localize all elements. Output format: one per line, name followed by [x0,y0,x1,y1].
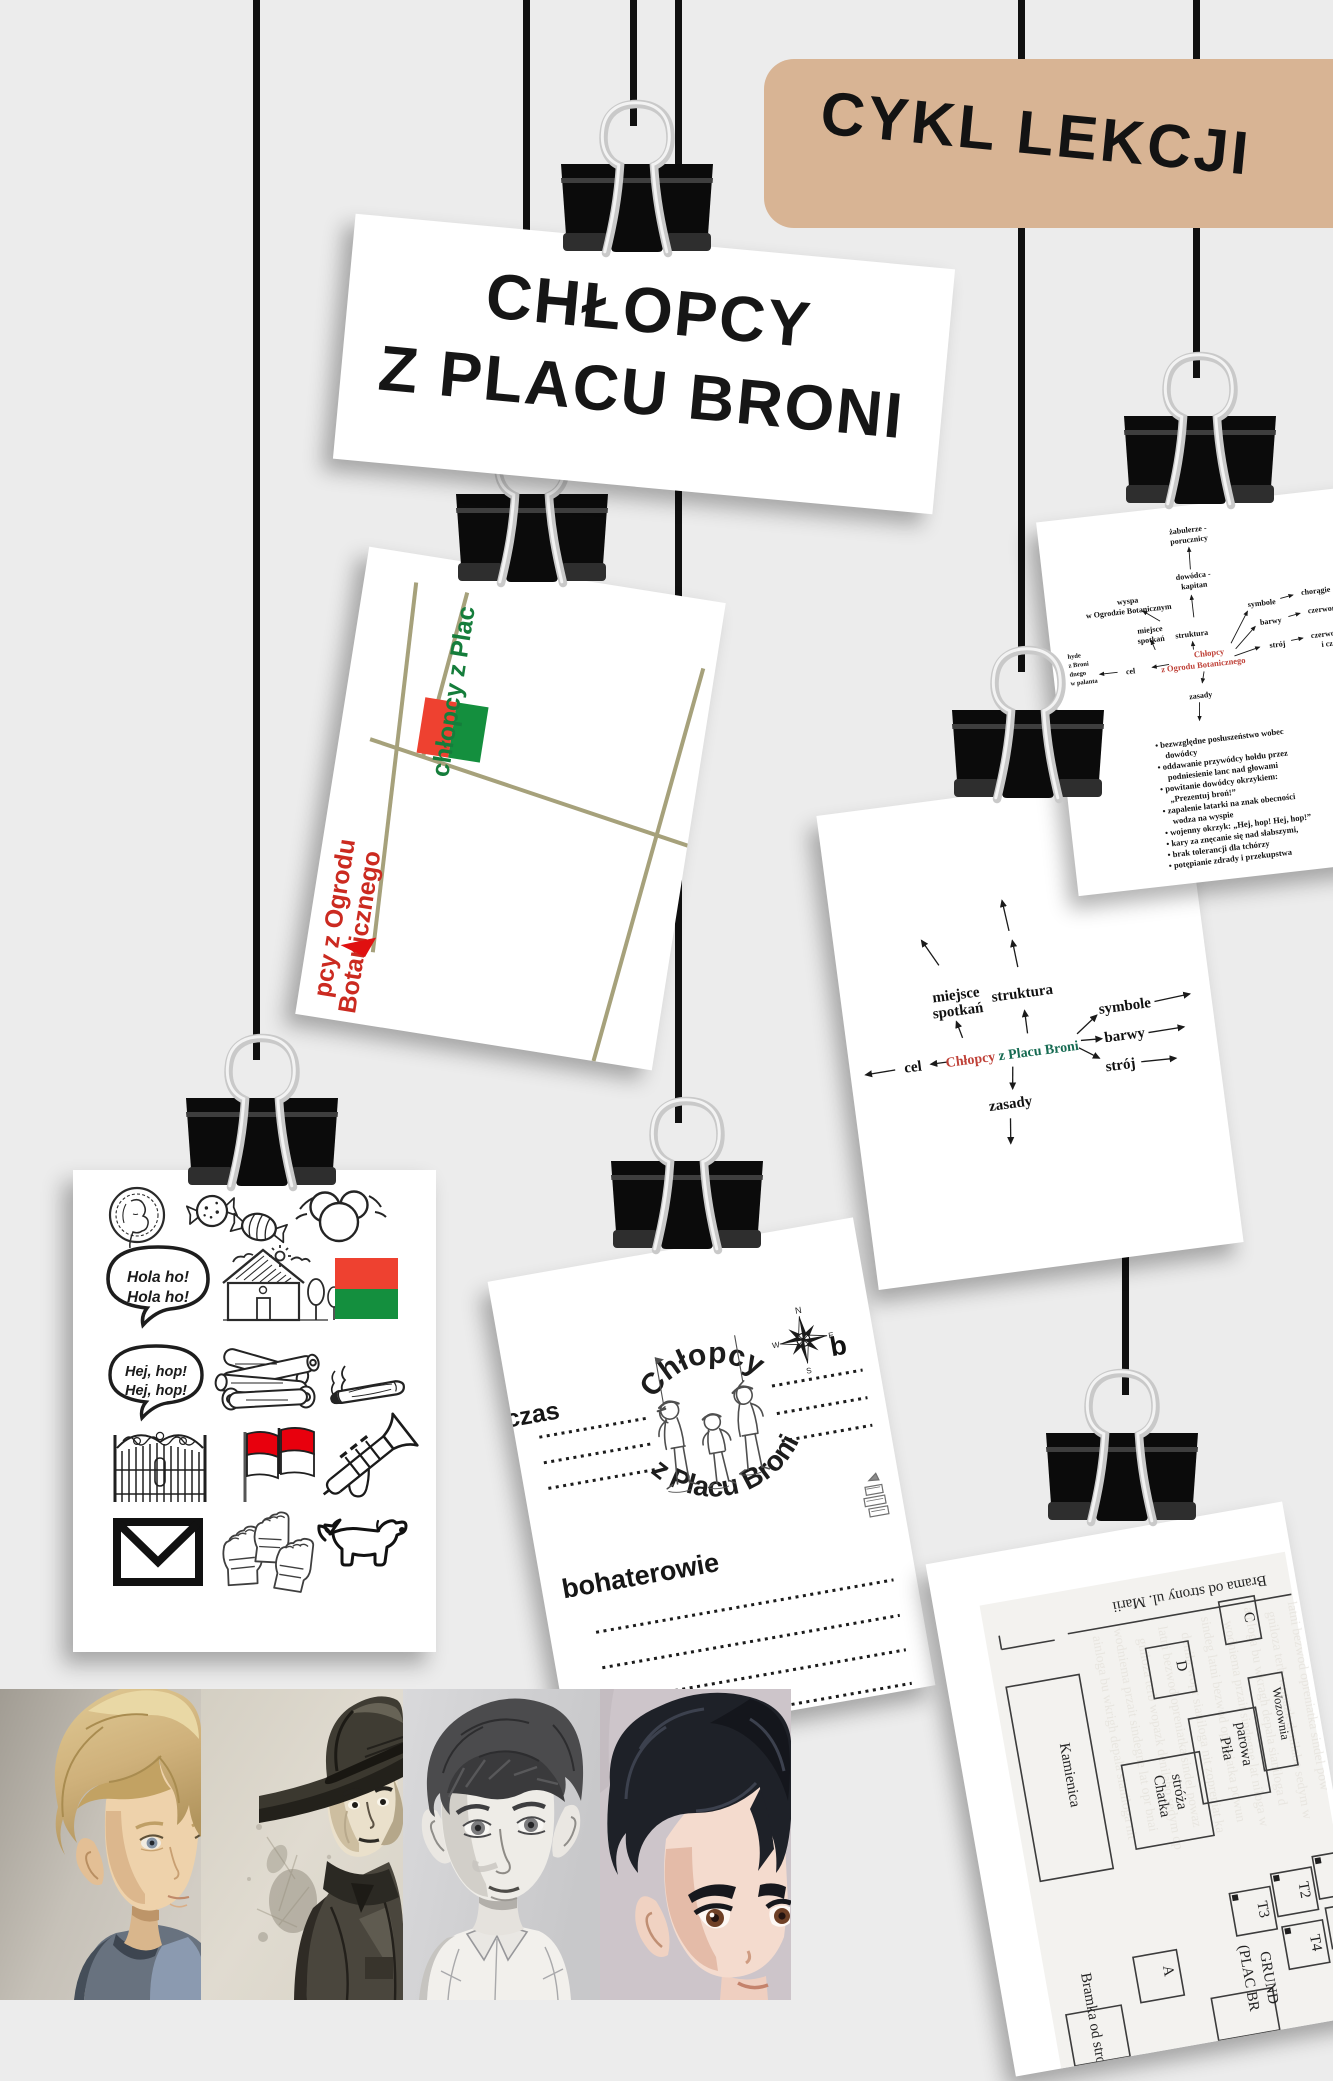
svg-text:• bezwzględne posłuszeństwo w: • bezwzględne posłuszeństwo wobec [1155,726,1285,751]
svg-text:struktura: struktura [991,982,1055,1006]
svg-text:Chłopcy: Chłopcy [628,1326,776,1406]
svg-text:z Placu Broni: z Placu Broni [642,1425,812,1515]
svg-text:spotkań: spotkań [1137,634,1166,646]
svg-text:N: N [794,1305,802,1316]
svg-text:czerwone: czerwone [1307,603,1333,616]
svg-text:strój: strój [1269,639,1286,650]
svg-text:chorągie: chorągie [1301,585,1332,597]
svg-text:T4: T4 [1306,1933,1325,1953]
svg-text:kapitan: kapitan [1181,580,1209,592]
svg-text:bohaterowie: bohaterowie [560,1547,722,1604]
svg-text:T2: T2 [1295,1880,1314,1899]
svg-text:Chłopcy z Placu Broni: Chłopcy z Placu Broni [945,1039,1080,1071]
svg-text:b: b [828,1330,849,1362]
svg-text:barwy: barwy [1103,1025,1146,1046]
svg-text:cel: cel [903,1059,922,1077]
svg-text:barwy: barwy [1259,615,1282,626]
svg-text:czas: czas [503,1397,561,1434]
svg-text:strój: strój [1105,1056,1137,1076]
svg-text:S: S [806,1366,813,1376]
svg-text:symbole: symbole [1247,597,1276,609]
svg-text:Hola ho!: Hola ho! [127,1269,189,1286]
svg-text:W: W [771,1340,780,1350]
svg-text:T3: T3 [1253,1900,1272,1919]
svg-text:i czapki: i czapki [1321,637,1333,649]
svg-text:symbole: symbole [1098,995,1152,1018]
svg-text:zasady: zasady [1189,690,1213,702]
svg-text:cel: cel [1125,666,1136,676]
svg-text:Hola ho!: Hola ho! [127,1289,189,1306]
svg-text:Hej, hop!: Hej, hop! [125,1364,187,1380]
svg-text:zasady: zasady [988,1093,1034,1115]
svg-text:Hej, hop!: Hej, hop! [125,1383,187,1399]
svg-text:struktura: struktura [1175,628,1209,641]
